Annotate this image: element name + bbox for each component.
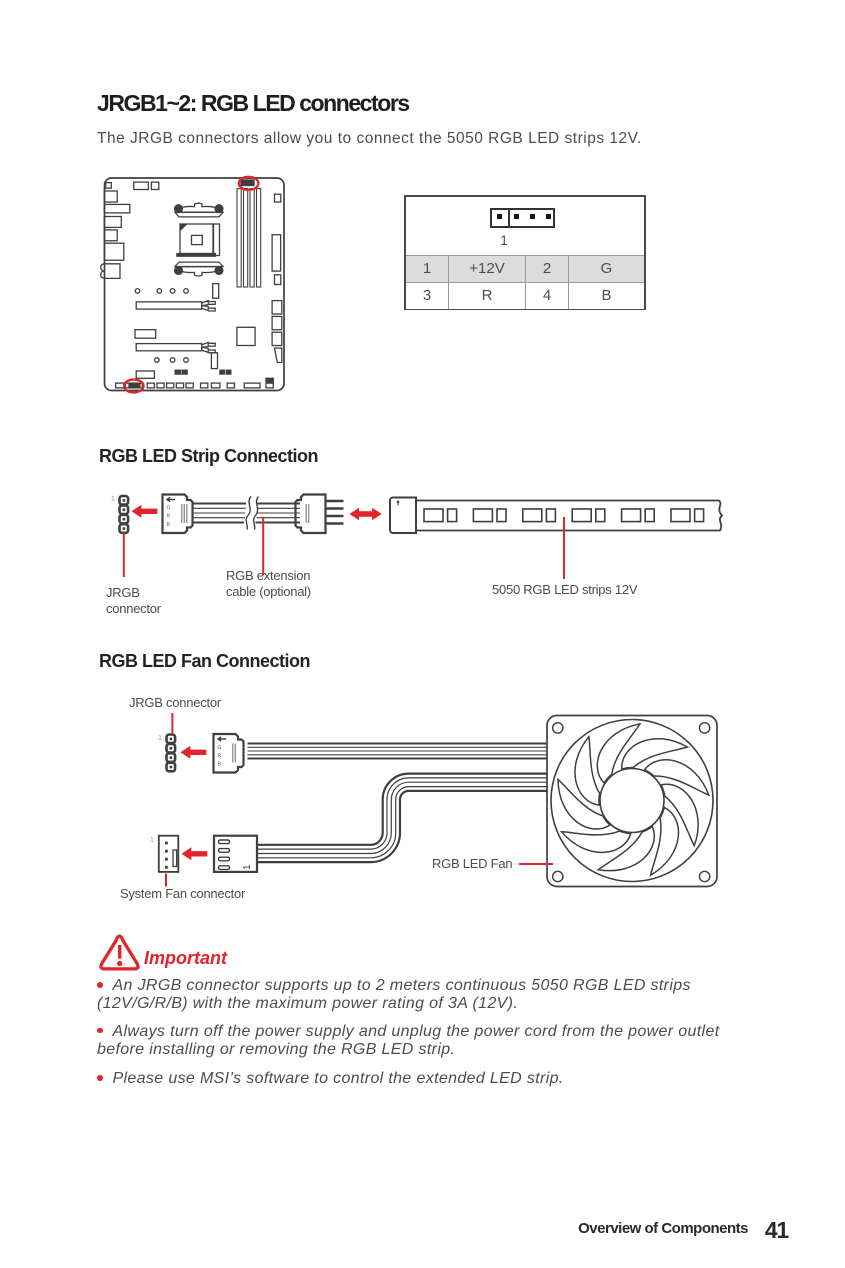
svg-text:G: G (218, 745, 222, 751)
svg-text:1: 1 (242, 864, 253, 870)
svg-text:1: 1 (150, 837, 154, 844)
svg-text:G: G (167, 506, 171, 512)
svg-text:1: 1 (158, 735, 162, 742)
svg-text:B: B (167, 522, 171, 528)
svg-text:R: R (167, 514, 171, 520)
svg-text:R: R (218, 753, 222, 759)
svg-text:1: 1 (111, 496, 115, 503)
